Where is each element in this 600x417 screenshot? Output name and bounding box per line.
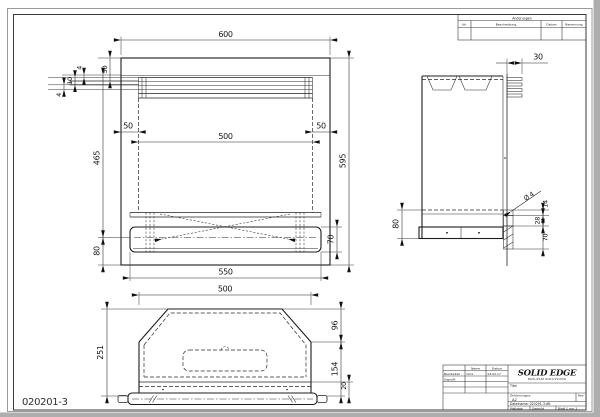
tb-row2-label: Geprüft	[444, 377, 456, 381]
tb-scale-label: Maßstab	[510, 406, 523, 410]
dim-side-p1: 14	[542, 200, 550, 208]
dim-front-base: 80	[93, 246, 102, 256]
dim-bottom-lower: 154	[331, 362, 340, 377]
window-edge-bottom	[0, 413, 600, 417]
revisions-col-desc: Beschreibung	[496, 23, 517, 27]
tb-row1-date: 02.02.17	[488, 372, 501, 376]
dim-front-opening: 500	[218, 132, 233, 141]
tb-weight-label: Gewicht	[532, 406, 545, 410]
tb-row1-label: Bearbeitet	[444, 372, 461, 376]
dim-front-inset-right: 50	[316, 122, 326, 131]
tb-col-name: Name	[471, 366, 480, 370]
tb-rev-label: Rev	[578, 394, 584, 398]
tb-title-label: Titel	[509, 384, 517, 388]
tb-row1-name: hme	[467, 372, 474, 376]
dim-bottom-depth: 251	[96, 345, 105, 360]
revisions-col-nr: Nr.	[462, 23, 466, 27]
dim-bottom-width: 500	[218, 285, 233, 294]
window-edge-right	[594, 0, 600, 417]
dim-front-height-left: 465	[93, 151, 102, 166]
dim-front-base-width: 550	[218, 268, 233, 277]
dim-front-lip-c: 4	[55, 93, 63, 97]
revisions-col-date: Datum	[546, 23, 556, 27]
tb-brand-sub: EDS-PLM SOLUTIONS	[527, 377, 566, 381]
dim-bottom-chamfer: 96	[331, 321, 340, 331]
dim-side-p3: 70	[542, 234, 550, 242]
dim-front-width: 600	[218, 30, 233, 39]
tb-col-date: Datum	[492, 366, 502, 370]
paper	[0, 0, 600, 417]
dim-side-fin: 30	[533, 53, 543, 62]
cad-drawing: Änderungen Nr. Beschreibung Datum Benenn…	[0, 0, 600, 417]
dim-front-bar: 70	[327, 235, 336, 245]
dim-front-inset-left: 50	[123, 122, 133, 131]
dim-bottom-plate: 20	[340, 382, 348, 390]
drawing-number: 020201-3	[22, 397, 68, 408]
dim-side-p2: 28	[534, 217, 542, 225]
dim-front-lip-a: 4	[76, 66, 84, 70]
dim-front-lip-b: 10	[66, 77, 74, 85]
tb-size-value: A2	[512, 398, 517, 402]
revisions-col-name: Benennung	[565, 23, 582, 27]
dim-front-height-right: 595	[339, 154, 348, 169]
tb-sheet-label: Blatt 1 von 1	[558, 406, 577, 410]
dim-side-base: 80	[392, 219, 401, 229]
dim-front-top-band: 50	[101, 66, 109, 74]
drawing-sheet: Änderungen Nr. Beschreibung Datum Benenn…	[0, 0, 600, 417]
revisions-title: Änderungen	[512, 15, 532, 20]
